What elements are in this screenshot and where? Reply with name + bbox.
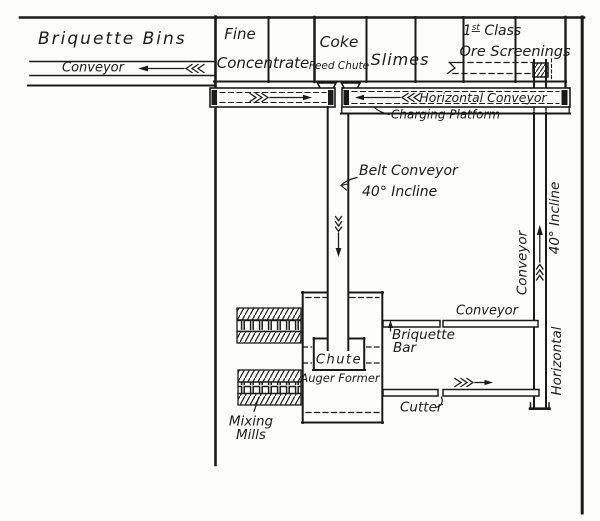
pulley-cap	[328, 90, 334, 105]
down-arrow	[336, 217, 342, 258]
bar-label: Bar	[393, 340, 418, 356]
elevator-conveyor-label: Conveyor	[515, 229, 531, 295]
concentrate-bin-label: Concentrate	[217, 54, 310, 72]
auger-former-label: Auger Former	[299, 371, 381, 385]
output-conveyor-label: Conveyor	[456, 304, 520, 319]
slimes-bin-label: Slimes	[371, 50, 430, 69]
cutter-conveyor-bar	[443, 390, 539, 397]
bins-conveyor-label: Conveyor	[62, 61, 126, 76]
mixing-mill-lower	[238, 370, 301, 405]
pulley-cap	[344, 90, 350, 105]
horizontal-conveyor-label: Horizontal Conveyor	[419, 90, 547, 105]
mills-label: Mills	[236, 427, 266, 443]
fine-bin-label: Fine	[224, 25, 256, 43]
cutter-label: Cutter	[400, 400, 444, 416]
mixing-mill-upper	[237, 308, 301, 343]
chute-label: Chute	[316, 353, 362, 368]
mixing-mills	[237, 308, 301, 412]
plant-diagram-svg: Briquette Bins Conveyor Fine Concentrate…	[0, 0, 600, 521]
cutter-right-arrow	[455, 379, 493, 387]
chute-hook	[448, 63, 460, 74]
charging-platform-label: Charging Platform	[391, 108, 500, 122]
belt-pointer-head	[341, 184, 348, 190]
first-class-num: 1	[463, 23, 472, 39]
elevator-incline-label: 40° Incline	[547, 182, 563, 255]
up-arrow	[537, 225, 543, 280]
briquette-conveyor-bar	[443, 321, 538, 328]
left-arrow	[138, 65, 204, 73]
first-class-label: 1st Class	[463, 23, 521, 39]
belt-incline-label: 40° Incline	[362, 184, 437, 200]
coke-bin-label: Coke	[320, 33, 359, 51]
pulley-cap	[212, 90, 218, 105]
feed-chute-label: Feed Chute	[309, 60, 369, 72]
pulley-cap	[562, 90, 568, 105]
elevator-horizontal-label: Horizontal	[549, 326, 565, 395]
first-class-rest: Class	[480, 23, 521, 39]
briquette-bins-label: Briquette Bins	[38, 29, 187, 49]
belt-conveyor-chute	[328, 107, 357, 350]
belt-conveyor-label: Belt Conveyor	[359, 163, 459, 179]
briquetting-plant-diagram: Briquette Bins Conveyor Fine Concentrate…	[0, 0, 600, 521]
ore-screenings-label: Ore Screenings	[459, 44, 570, 60]
cutter-bar	[383, 390, 438, 397]
